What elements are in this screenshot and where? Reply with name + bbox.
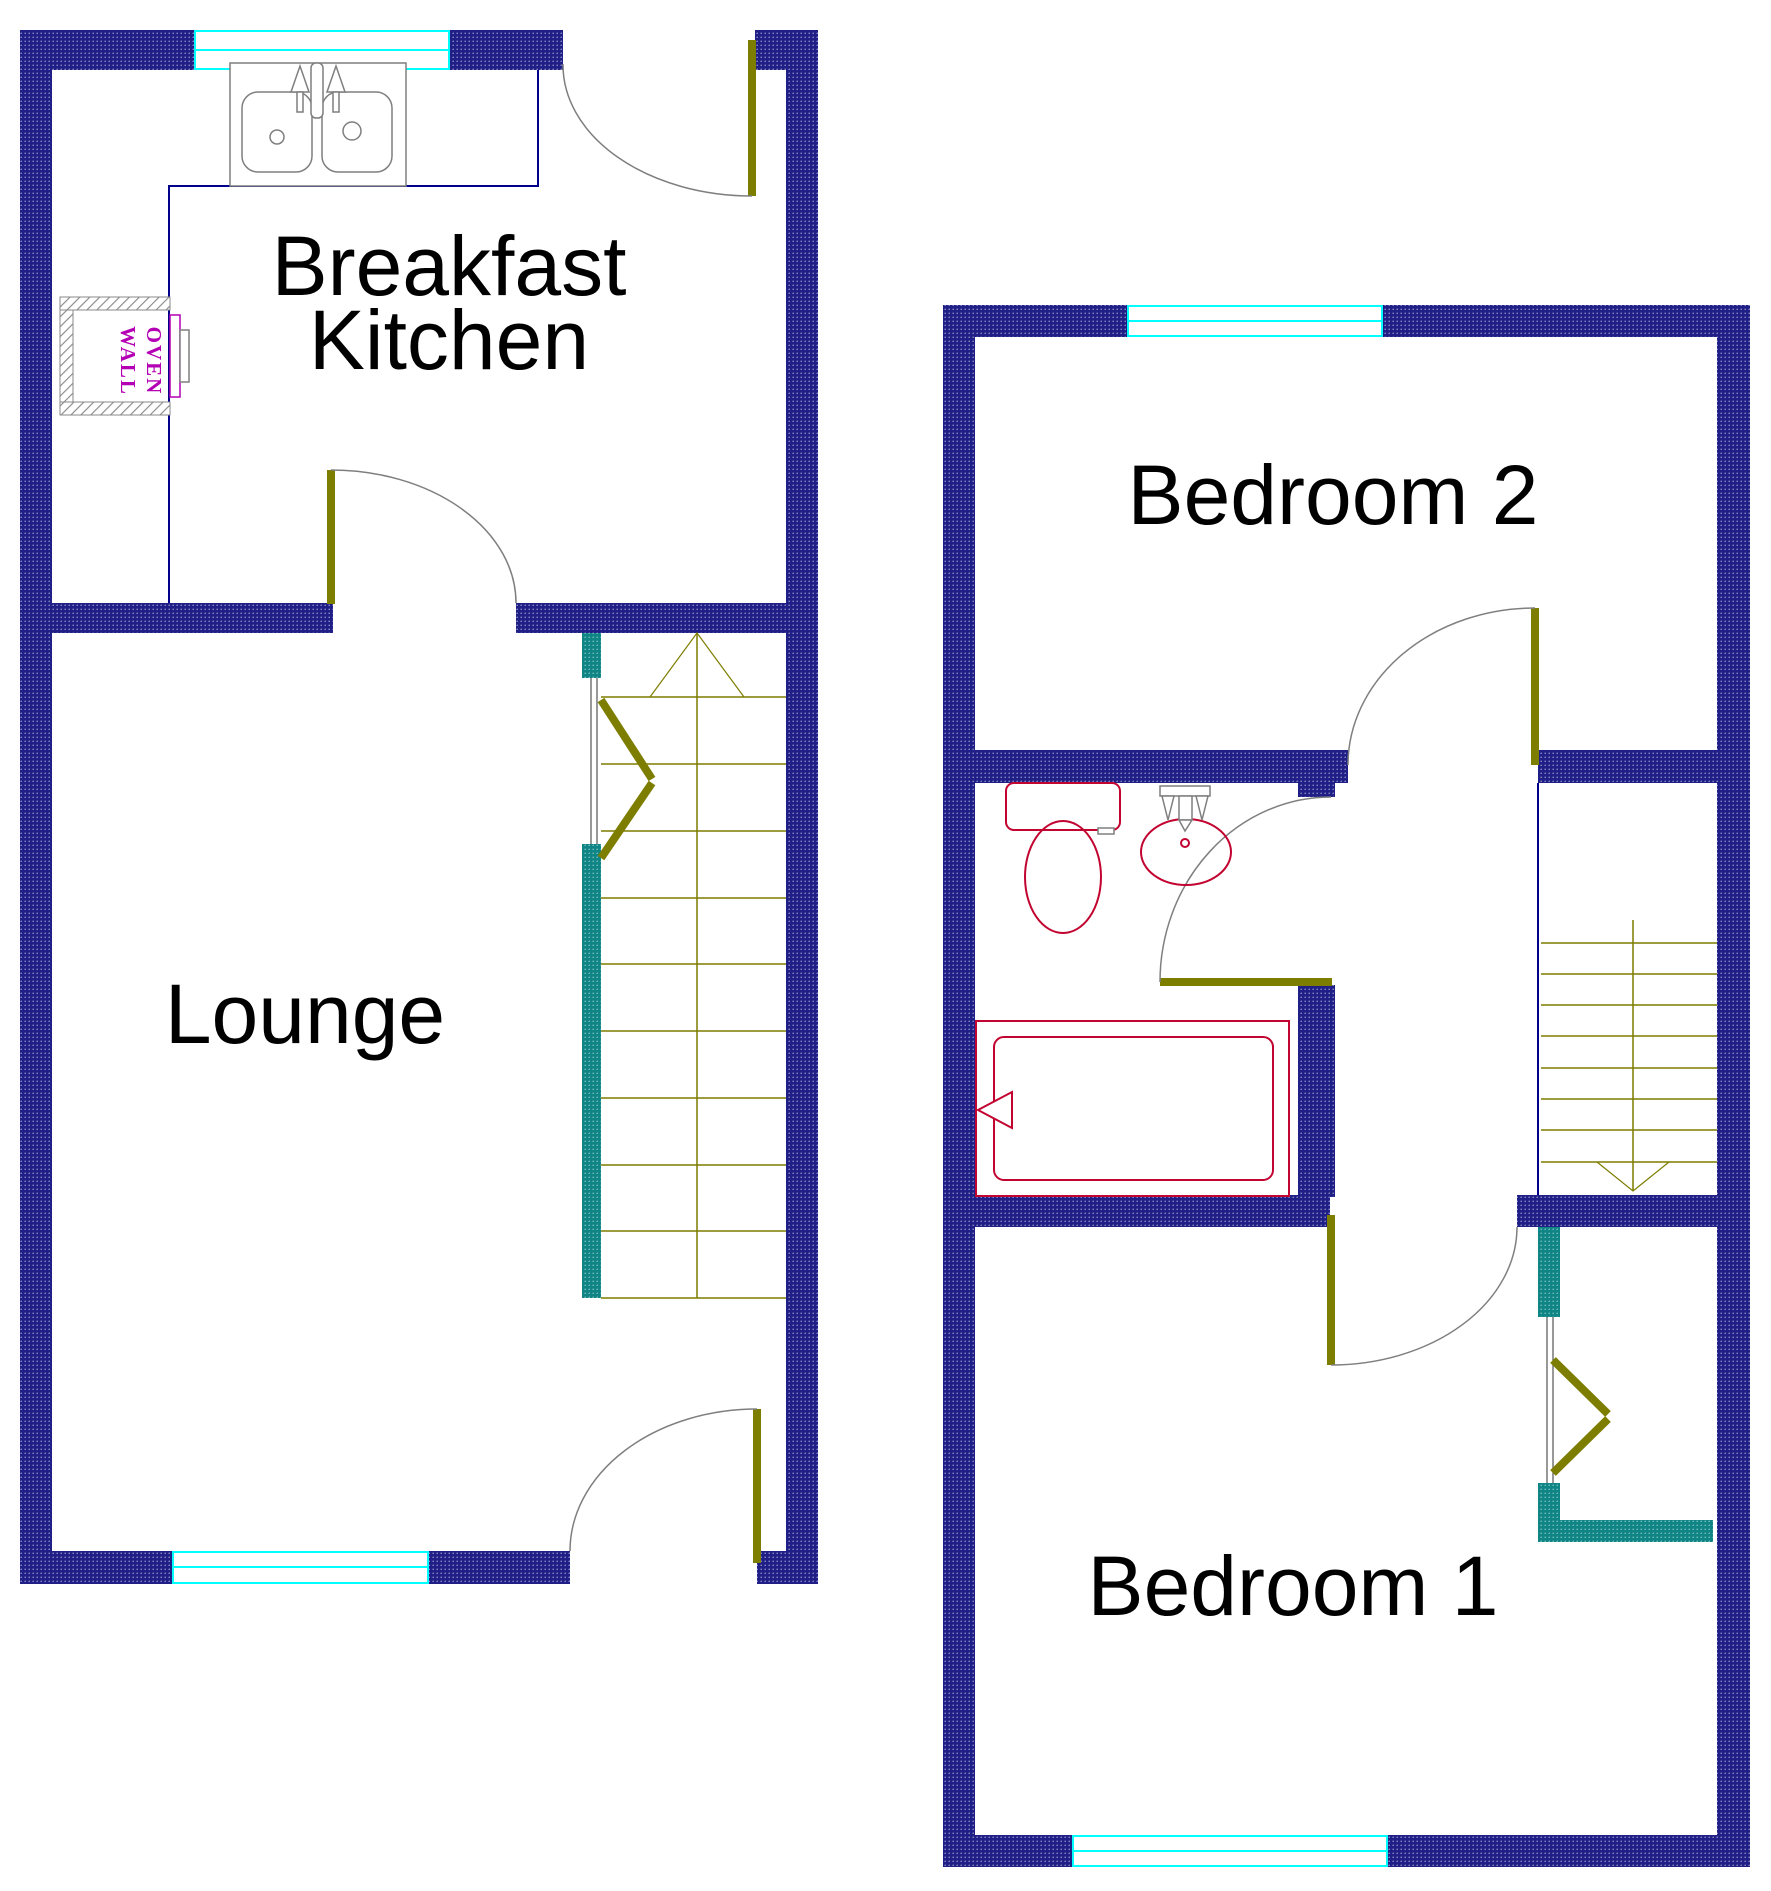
bedroom2-label: Bedroom 2: [1128, 458, 1539, 532]
kitchen-entry-door: [563, 40, 756, 196]
bedroom1-cupboard: [1538, 1227, 1713, 1542]
ground-staircase: [582, 633, 786, 1298]
cupboard-chevron-icon: [601, 700, 652, 858]
door-leaf: [1327, 1215, 1335, 1365]
wall-segment: [1387, 1835, 1750, 1867]
door-leaf: [1160, 978, 1332, 986]
wall-segment: [20, 30, 52, 1584]
wall-segment: [1517, 1195, 1717, 1227]
wall-segment: [516, 603, 786, 633]
bedroom2-door: [1348, 608, 1539, 765]
bedroom1-door: [1327, 1215, 1517, 1365]
floorplan-page: Breakfast Kitchen Lounge Bedroom 2 Bedro…: [0, 0, 1771, 1891]
lounge-window: [173, 1552, 428, 1583]
wall-segment: [428, 1551, 570, 1584]
wall-segment: [975, 750, 1348, 783]
stair-partition: [582, 633, 601, 678]
door-leaf: [748, 40, 756, 196]
door-arc: [1331, 1227, 1517, 1365]
bedroom2-window: [1128, 306, 1382, 336]
stair-partition: [582, 844, 601, 1298]
lounge-label: Lounge: [165, 977, 445, 1051]
wall-segment: [1382, 305, 1750, 337]
kitchen-label-line1: Breakfast: [272, 229, 627, 303]
door-arc: [570, 1409, 757, 1551]
wash-basin: [1141, 786, 1231, 885]
bedroom1-label: Bedroom 1: [1088, 1549, 1499, 1623]
wall-segment: [943, 305, 975, 1867]
wall-segment: [1298, 783, 1335, 797]
oven-label-line2: WALL: [115, 326, 141, 396]
wall-segment: [1717, 305, 1750, 1867]
wall-segment: [1298, 985, 1335, 1197]
wall-segment: [449, 30, 563, 70]
door-leaf: [753, 1409, 761, 1563]
wall-segment: [943, 1835, 1073, 1867]
bedroom1-window: [1073, 1836, 1387, 1866]
kitchen-lounge-door: [327, 470, 516, 604]
oven-label-line1: OVEN: [141, 326, 167, 396]
cupboard-partition: [1560, 1520, 1713, 1542]
door-leaf: [327, 470, 335, 604]
sink-tap-icon: [291, 63, 345, 118]
toilet: [1006, 783, 1120, 933]
wall-segment: [975, 1195, 1330, 1227]
basin-tap-icon: [1160, 786, 1210, 831]
first-floor-staircase: [1538, 783, 1717, 1195]
bathtub: [976, 1021, 1289, 1196]
oven-door-icon: [170, 315, 180, 397]
kitchen-sink: [230, 63, 406, 186]
door-arc: [1348, 608, 1535, 765]
cupboard-partition: [1538, 1483, 1560, 1542]
door-arc: [331, 470, 516, 603]
cupboard-partition: [1538, 1227, 1560, 1317]
wall-segment: [20, 1551, 173, 1584]
kitchen-label: Breakfast Kitchen: [272, 229, 627, 377]
door-leaf: [1531, 608, 1539, 765]
wall-segment: [757, 1551, 818, 1584]
door-arc: [563, 64, 752, 196]
wall-segment: [786, 30, 818, 1584]
kitchen-label-line2: Kitchen: [272, 303, 627, 377]
wall-segment: [1538, 750, 1717, 783]
wall-segment: [52, 603, 333, 633]
floorplan-canvas: [0, 0, 1771, 1891]
oven-wall-label: OVEN WALL: [115, 326, 167, 396]
lounge-external-door: [570, 1409, 761, 1563]
cupboard-chevron-icon: [1553, 1360, 1608, 1473]
